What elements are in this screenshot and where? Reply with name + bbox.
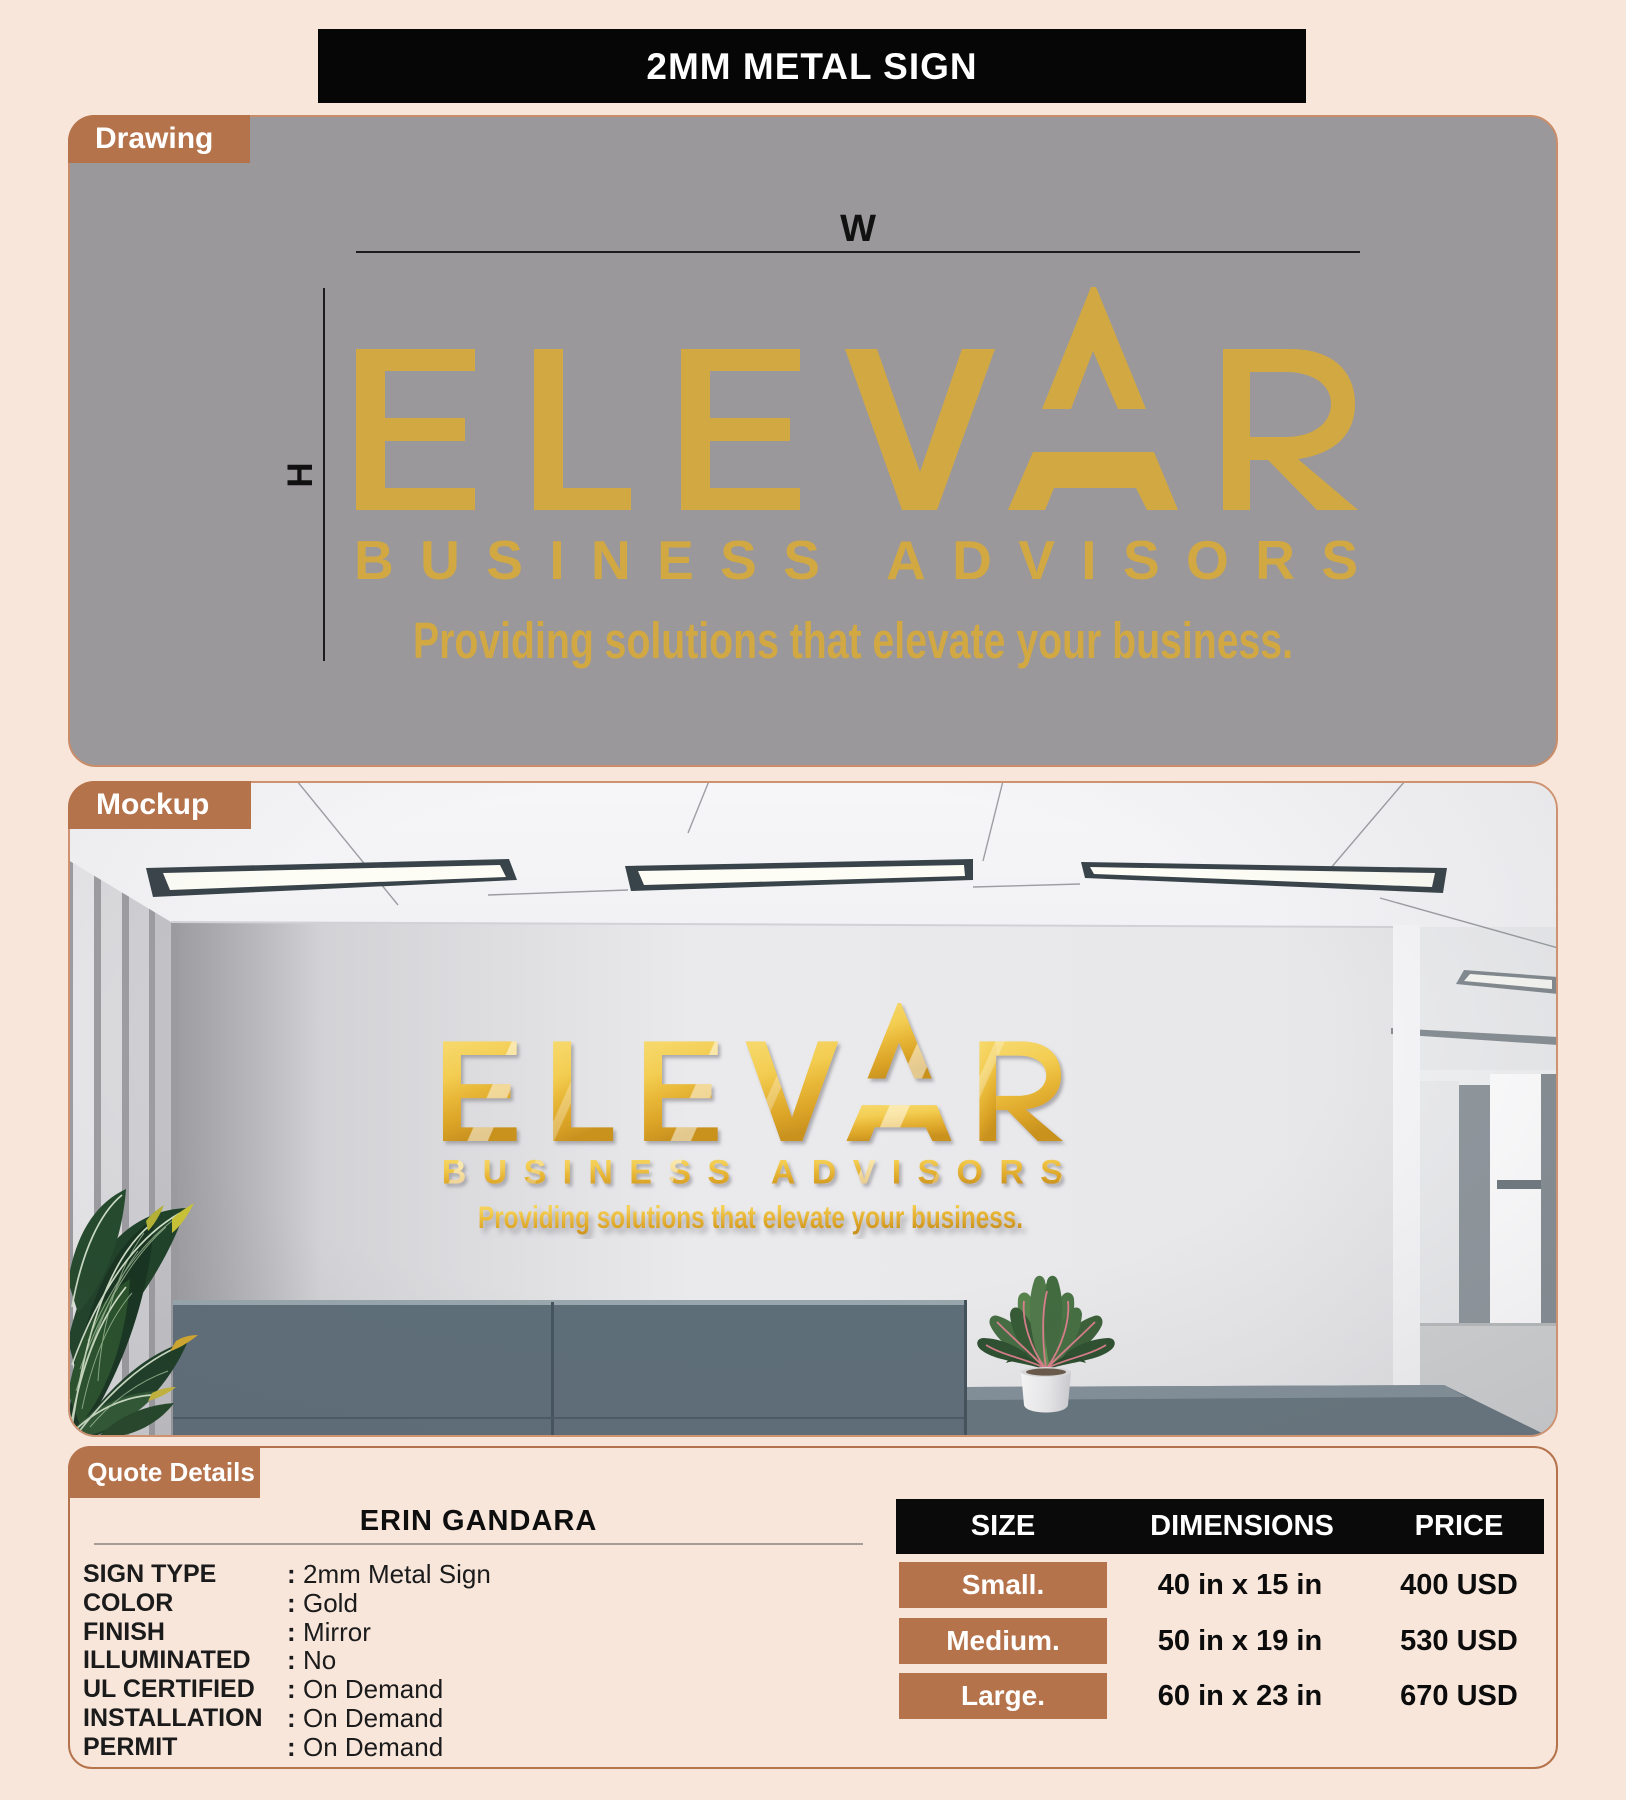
svg-text:Providing solutions that eleva: Providing solutions that elevate your bu… [413,612,1293,669]
svg-text:W: W [840,208,876,250]
svg-text:H: H [281,462,320,487]
